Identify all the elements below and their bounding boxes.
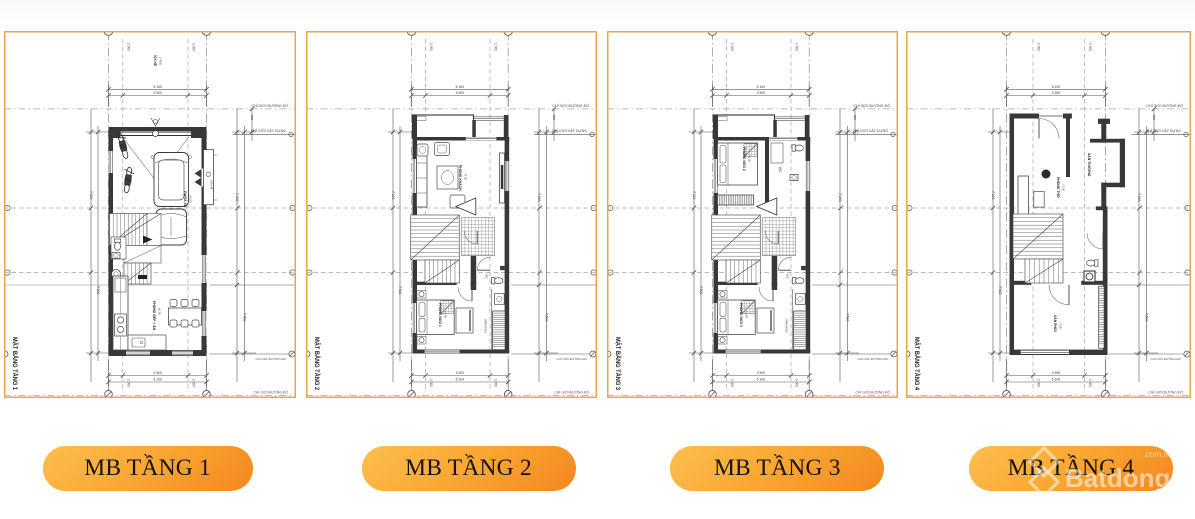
svg-text:+3.60: +3.60 bbox=[748, 155, 752, 163]
svg-text:2 400: 2 400 bbox=[159, 57, 163, 65]
svg-text:7 500: 7 500 bbox=[699, 286, 703, 295]
svg-text:1 000: 1 000 bbox=[126, 379, 130, 387]
svg-text:500: 500 bbox=[853, 115, 857, 120]
svg-text:4 900: 4 900 bbox=[456, 91, 465, 95]
svg-text:500: 500 bbox=[552, 115, 556, 120]
svg-text:CHỈ GIỚI XÂY DỰNG: CHỈ GIỚI XÂY DỰNG bbox=[251, 128, 286, 133]
svg-text:1 000: 1 000 bbox=[795, 43, 799, 51]
svg-text:+7.20: +7.20 bbox=[1059, 322, 1063, 330]
svg-text:1 000: 1 000 bbox=[730, 43, 734, 51]
svg-text:CHỈ GIỚI ĐƯỜNG ĐỎ: CHỈ GIỚI ĐƯỜNG ĐỎ bbox=[556, 356, 587, 361]
svg-text:4 900: 4 900 bbox=[757, 371, 766, 375]
svg-text:SÂN THƯỢNG: SÂN THƯỢNG bbox=[1087, 153, 1092, 177]
svg-text:1 000: 1 000 bbox=[1037, 379, 1041, 387]
svg-text:4 900: 4 900 bbox=[1052, 371, 1061, 375]
svg-text:7 200: 7 200 bbox=[1137, 193, 1141, 202]
svg-text:1 000: 1 000 bbox=[494, 43, 498, 51]
svg-text:7 500: 7 500 bbox=[96, 286, 100, 295]
svg-text:CHỈ GIỚI ĐƯỜNG ĐỎ: CHỈ GIỚI ĐƯỜNG ĐỎ bbox=[1146, 103, 1183, 108]
svg-text:500: 500 bbox=[250, 115, 254, 120]
svg-text:SÂN PHƠI: SÂN PHƠI bbox=[785, 319, 790, 333]
svg-text:7 500: 7 500 bbox=[398, 286, 402, 295]
svg-text:7 200: 7 200 bbox=[391, 191, 395, 200]
svg-text:+7.20: +7.20 bbox=[1062, 184, 1066, 192]
svg-text:5 100: 5 100 bbox=[153, 85, 162, 89]
svg-text:WC: WC bbox=[786, 274, 790, 279]
svg-text:4 900: 4 900 bbox=[153, 91, 162, 95]
svg-text:by PropertyGuru: by PropertyGuru bbox=[1068, 488, 1156, 502]
svg-text:CHỈ GIỚI ĐƯỜNG ĐỎ: CHỈ GIỚI ĐƯỜNG ĐỎ bbox=[554, 390, 589, 395]
svg-text:+3.60: +3.60 bbox=[745, 311, 749, 319]
svg-text:7 200: 7 200 bbox=[537, 193, 541, 202]
svg-text:1 000: 1 000 bbox=[126, 43, 130, 51]
svg-text:500: 500 bbox=[1152, 115, 1156, 120]
svg-text:CHỈ GIỚI ĐƯỜNG ĐỎ: CHỈ GIỚI ĐƯỜNG ĐỎ bbox=[857, 356, 888, 361]
svg-text:SÂN PHƠI: SÂN PHƠI bbox=[1053, 315, 1058, 332]
svg-text:PHÒNG NGỦ 2: PHÒNG NGỦ 2 bbox=[742, 147, 747, 171]
svg-text:4 900: 4 900 bbox=[153, 371, 162, 375]
svg-text:7 500: 7 500 bbox=[846, 313, 850, 322]
svg-text:1 000: 1 000 bbox=[429, 379, 433, 387]
svg-text:1 000: 1 000 bbox=[1088, 43, 1092, 51]
svg-text:7 200: 7 200 bbox=[89, 191, 93, 200]
svg-text:WC: WC bbox=[485, 274, 489, 279]
svg-text:PHÒNG NGỦ 1: PHÒNG NGỦ 1 bbox=[438, 303, 443, 327]
svg-text:1 000: 1 000 bbox=[1088, 379, 1092, 387]
svg-text:1 000: 1 000 bbox=[1037, 43, 1041, 51]
svg-text:CHỈ GIỚI ĐƯỜNG ĐỎ: CHỈ GIỚI ĐƯỜNG ĐỎ bbox=[251, 103, 288, 108]
svg-text:+3.60: +3.60 bbox=[464, 173, 468, 181]
svg-text:CHỈ GIỚI ĐƯỜNG ĐỎ: CHỈ GIỚI ĐƯỜNG ĐỎ bbox=[552, 103, 589, 108]
svg-text:CHỈ GIỚI ĐƯỜNG ĐỎ: CHỈ GIỚI ĐƯỜNG ĐỎ bbox=[1148, 390, 1183, 395]
svg-text:.com.vn: .com.vn bbox=[1143, 449, 1173, 459]
svg-text:SÂN PHƠI: SÂN PHƠI bbox=[484, 319, 489, 333]
svg-text:7 500: 7 500 bbox=[1145, 313, 1149, 322]
svg-text:5 100: 5 100 bbox=[757, 85, 766, 89]
svg-text:5 100: 5 100 bbox=[757, 378, 766, 382]
svg-text:VỈA HÈ: VỈA HÈ bbox=[210, 180, 215, 190]
svg-text:PHÒNG KHÁCH: PHÒNG KHÁCH bbox=[458, 165, 463, 191]
svg-text:CHỈ GIỚI ĐƯỜNG ĐỎ: CHỈ GIỚI ĐƯỜNG ĐỎ bbox=[853, 103, 890, 108]
svg-text:5 100: 5 100 bbox=[1052, 378, 1061, 382]
svg-text:7 500: 7 500 bbox=[545, 313, 549, 322]
svg-text:1 000: 1 000 bbox=[795, 379, 799, 387]
svg-text:4 900: 4 900 bbox=[1052, 91, 1061, 95]
svg-text:7 200: 7 200 bbox=[692, 191, 696, 200]
svg-text:+3.60: +3.60 bbox=[444, 311, 448, 319]
svg-text:1 000: 1 000 bbox=[192, 43, 196, 51]
svg-text:CHỈ GIỚI ĐƯỜNG ĐỎ: CHỈ GIỚI ĐƯỜNG ĐỎ bbox=[1150, 356, 1181, 361]
svg-text:1 000: 1 000 bbox=[192, 379, 196, 387]
svg-text:7 500: 7 500 bbox=[998, 286, 1002, 295]
svg-text:7 200: 7 200 bbox=[991, 191, 995, 200]
svg-text:±0.00: ±0.00 bbox=[158, 308, 162, 315]
svg-text:7 200: 7 200 bbox=[838, 193, 842, 202]
svg-text:1 000: 1 000 bbox=[494, 379, 498, 387]
svg-text:CHỈ GIỚI ĐƯỜNG ĐỎ: CHỈ GIỚI ĐƯỜNG ĐỎ bbox=[255, 356, 286, 361]
svg-text:7 500: 7 500 bbox=[243, 313, 247, 322]
svg-text:WC: WC bbox=[778, 167, 782, 173]
svg-text:CHỈ GIỚI ĐƯỜNG ĐỎ: CHỈ GIỚI ĐƯỜNG ĐỎ bbox=[855, 390, 890, 395]
svg-text:±0.00: ±0.00 bbox=[189, 195, 193, 203]
svg-text:5 100: 5 100 bbox=[153, 378, 162, 382]
svg-text:PHÒNG BẾP + ĂN: PHÒNG BẾP + ĂN bbox=[152, 301, 157, 331]
svg-text:PHÒNG THỜ: PHÒNG THỜ bbox=[1056, 177, 1061, 198]
svg-text:GARA XE: GARA XE bbox=[183, 191, 187, 208]
svg-text:7 200: 7 200 bbox=[235, 193, 239, 202]
svg-text:5 100: 5 100 bbox=[1052, 85, 1061, 89]
svg-text:VỈA HÈ: VỈA HÈ bbox=[153, 55, 158, 67]
svg-text:4 900: 4 900 bbox=[757, 91, 766, 95]
svg-text:5 100: 5 100 bbox=[456, 85, 465, 89]
svg-text:5 100: 5 100 bbox=[456, 378, 465, 382]
svg-text:4 900: 4 900 bbox=[456, 371, 465, 375]
svg-text:1 000: 1 000 bbox=[429, 43, 433, 51]
svg-text:PHÒNG NGỦ 3: PHÒNG NGỦ 3 bbox=[739, 303, 744, 327]
svg-text:1 000: 1 000 bbox=[730, 379, 734, 387]
svg-text:CHỈ GIỚI ĐƯỜNG ĐỎ: CHỈ GIỚI ĐƯỜNG ĐỎ bbox=[253, 390, 288, 395]
